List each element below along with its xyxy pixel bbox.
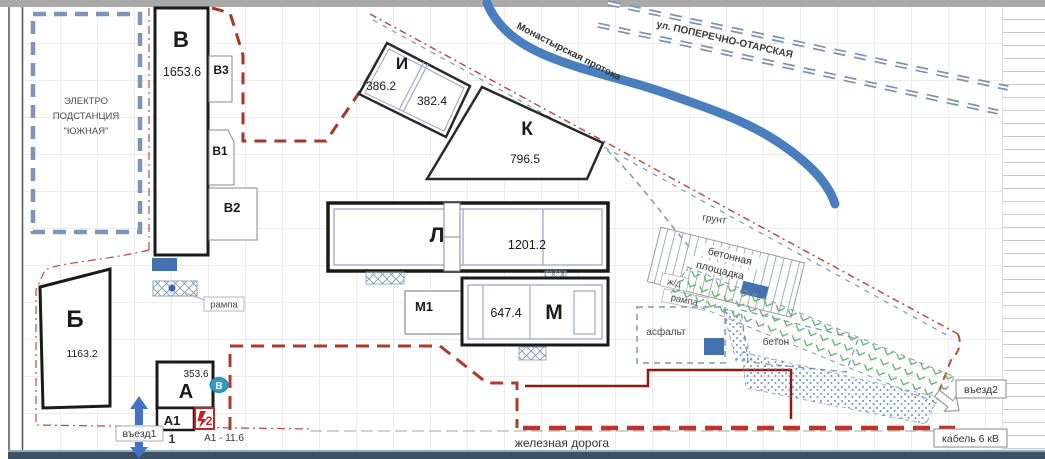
building-v1: В1 — [209, 130, 234, 185]
cable-label-group: кабель 6 кВ — [934, 429, 1007, 447]
concrete-label: бетон — [763, 336, 789, 348]
railway-label: железная дорога — [515, 436, 609, 450]
substation-label-2: ПОДСТАНЦИЯ — [53, 111, 120, 122]
point-b-marker-label: В — [215, 381, 222, 392]
building-i-area-left: 386.2 — [366, 79, 396, 93]
site-plan-svg: Монастырская протока ул. ПОПЕРЕЧНО-ОТАРС… — [0, 0, 1045, 459]
building-b-outline — [40, 269, 110, 408]
building-m: 647.4 М — [462, 278, 608, 360]
building-v-label: В — [173, 27, 189, 52]
street-line-lower-gap — [598, 25, 998, 112]
building-m-area: 647.4 — [490, 306, 521, 320]
asphalt-area: асфальт — [637, 307, 725, 363]
substation-boundary — [33, 14, 140, 232]
building-b-area: 1163.2 — [66, 348, 97, 360]
building-l-ramp-hatch-left — [366, 272, 404, 284]
building-m1: М1 — [405, 291, 462, 334]
building-a-index: 1 — [169, 432, 176, 446]
building-v: В 1653.6 — [155, 8, 208, 255]
building-v1-label: В1 — [212, 144, 228, 158]
loading-dock-blue — [152, 258, 177, 271]
building-i: И 386.2 382.4 — [359, 43, 470, 137]
substation-label-3: "ЮЖНАЯ" — [64, 126, 109, 137]
entrance2-label: въезд2 — [964, 384, 998, 396]
building-i-area-right: 382.4 — [417, 94, 447, 108]
building-l: Л 1201.2 — [328, 203, 608, 284]
building-a1-label: А1 — [164, 413, 181, 428]
building-l-outline — [328, 203, 608, 271]
building-a1-note: А1 - 11.6 — [204, 433, 244, 444]
building-v-area: 1653.6 — [163, 65, 201, 79]
building-b-label: Б — [66, 306, 83, 333]
building-v3: В3 — [209, 56, 232, 102]
building-i-label: И — [396, 54, 408, 73]
a-zone-boundary-red — [230, 346, 517, 430]
ramp-near-v: рампа — [152, 258, 244, 311]
building-m-outline — [462, 278, 608, 345]
building-a-area: 353.6 — [183, 369, 208, 380]
asphalt-label: асфальт — [646, 326, 686, 338]
substation: ЭЛЕКТРО ПОДСТАНЦИЯ "ЮЖНАЯ" — [33, 14, 140, 232]
cable-label: кабель 6 кВ — [942, 433, 999, 445]
railway: железная дорога — [310, 428, 955, 450]
building-k-area: 796.5 — [510, 152, 540, 166]
entrance1-label: въезд1 — [123, 428, 157, 440]
building-l-label: Л — [430, 224, 445, 247]
building-m-ramp-hatch — [519, 347, 546, 360]
entrance1-arrow-down — [130, 442, 148, 458]
building-v3-label: В3 — [213, 63, 229, 77]
site-plan: Монастырская протока ул. ПОПЕРЕЧНО-ОТАРС… — [0, 0, 1045, 459]
building-v2-label: В2 — [224, 200, 241, 215]
substation-label-1: ЭЛЕКТРО — [64, 96, 108, 107]
building-l-area: 1201.2 — [508, 238, 546, 252]
street-line-upper-gap — [608, 3, 1008, 88]
building-b: Б 1163.2 — [40, 269, 110, 408]
ramp-label: рампа — [210, 300, 238, 311]
photo-marker-number: 2 — [206, 414, 213, 428]
building-v2: В2 — [209, 188, 257, 240]
asphalt-blue-square — [704, 338, 724, 355]
building-a-label: А — [179, 381, 193, 403]
building-m1-outline — [405, 291, 462, 334]
ground-label: грунт — [702, 212, 728, 226]
site-boundary-red-nw — [212, 8, 387, 141]
building-m1-label: М1 — [415, 299, 433, 314]
ramp-dot — [169, 285, 176, 292]
entrance1-arrow-up — [130, 396, 148, 425]
building-k-label: К — [521, 119, 533, 140]
building-m-label: М — [545, 301, 563, 324]
